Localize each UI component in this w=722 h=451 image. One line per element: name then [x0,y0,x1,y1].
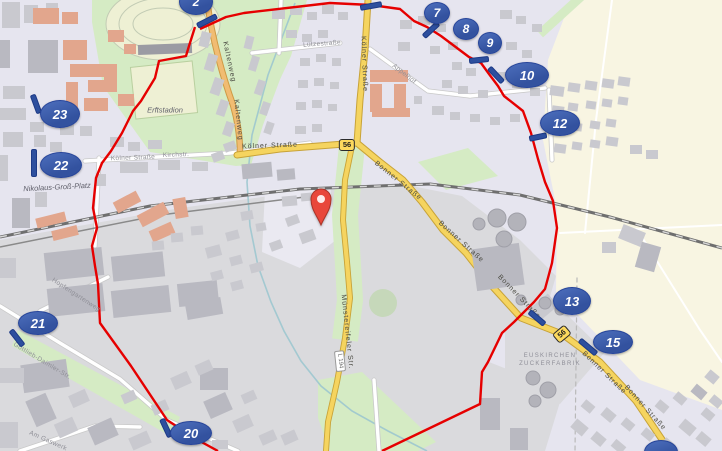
map-marker-10[interactable]: 10 [505,62,549,88]
map-marker-9[interactable]: 9 [478,32,502,54]
map-marker-13[interactable]: 13 [553,287,591,315]
map-marker-15[interactable]: 15 [593,330,633,354]
map-marker-22[interactable]: 22 [40,152,82,178]
map-canvas[interactable] [0,0,722,451]
stop-tick-marker[interactable] [31,149,37,177]
map-marker-12[interactable]: 12 [540,110,580,136]
map-marker-7[interactable]: 7 [424,2,450,24]
map-marker-21[interactable]: 21 [18,311,58,335]
map-marker-8[interactable]: 8 [453,18,479,40]
road-ref-badge: L 194 [334,350,346,372]
map-marker-20[interactable]: 20 [170,421,212,445]
map-viewport[interactable]: Kölner StraßeKölner StraßeBonner StraßeB… [0,0,722,451]
road-ref-badge: 56 [339,139,355,151]
map-marker-23[interactable]: 23 [40,100,80,128]
location-pin[interactable] [306,187,336,227]
